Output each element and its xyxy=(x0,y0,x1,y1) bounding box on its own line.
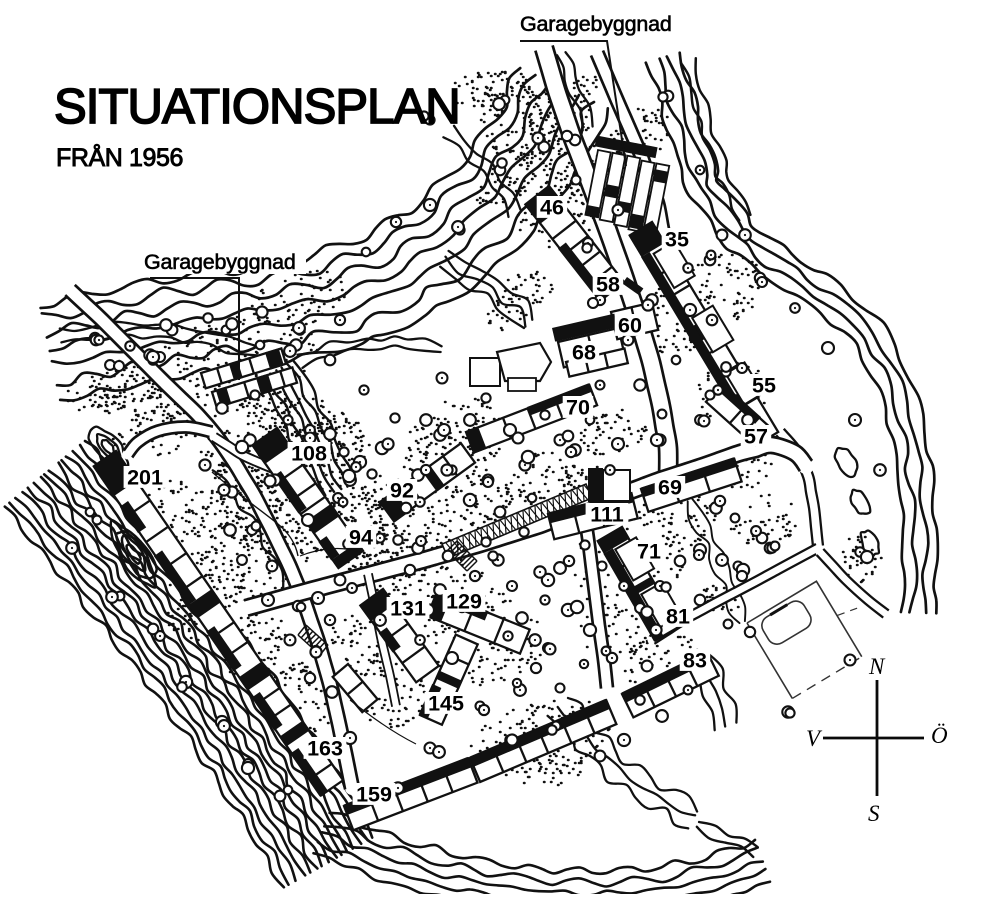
svg-text:68: 68 xyxy=(572,341,596,365)
svg-text:69: 69 xyxy=(658,476,682,500)
svg-text:60: 60 xyxy=(618,314,642,338)
svg-text:131: 131 xyxy=(390,597,426,621)
svg-text:159: 159 xyxy=(356,783,392,807)
svg-text:201: 201 xyxy=(127,466,163,490)
svg-text:163: 163 xyxy=(307,737,343,761)
svg-text:108: 108 xyxy=(291,442,327,466)
svg-text:71: 71 xyxy=(637,540,661,564)
svg-text:Garagebyggnad: Garagebyggnad xyxy=(520,12,672,36)
svg-text:Garagebyggnad: Garagebyggnad xyxy=(144,250,296,274)
svg-text:129: 129 xyxy=(446,590,482,614)
svg-text:S: S xyxy=(868,801,880,826)
svg-text:92: 92 xyxy=(390,479,414,503)
svg-text:111: 111 xyxy=(590,503,624,527)
svg-text:SITUATIONSPLAN: SITUATIONSPLAN xyxy=(54,80,460,134)
svg-text:Ö: Ö xyxy=(931,723,948,748)
svg-text:83: 83 xyxy=(683,649,707,673)
svg-text:46: 46 xyxy=(540,196,564,220)
svg-text:58: 58 xyxy=(596,273,620,297)
svg-text:70: 70 xyxy=(566,396,590,420)
svg-text:94: 94 xyxy=(349,526,373,550)
svg-text:FRÅN 1956: FRÅN 1956 xyxy=(56,142,183,172)
svg-text:N: N xyxy=(868,654,886,679)
svg-text:145: 145 xyxy=(428,692,464,716)
svg-text:55: 55 xyxy=(752,374,776,398)
svg-text:81: 81 xyxy=(666,605,690,629)
svg-text:35: 35 xyxy=(665,228,689,252)
svg-text:57: 57 xyxy=(744,425,768,449)
